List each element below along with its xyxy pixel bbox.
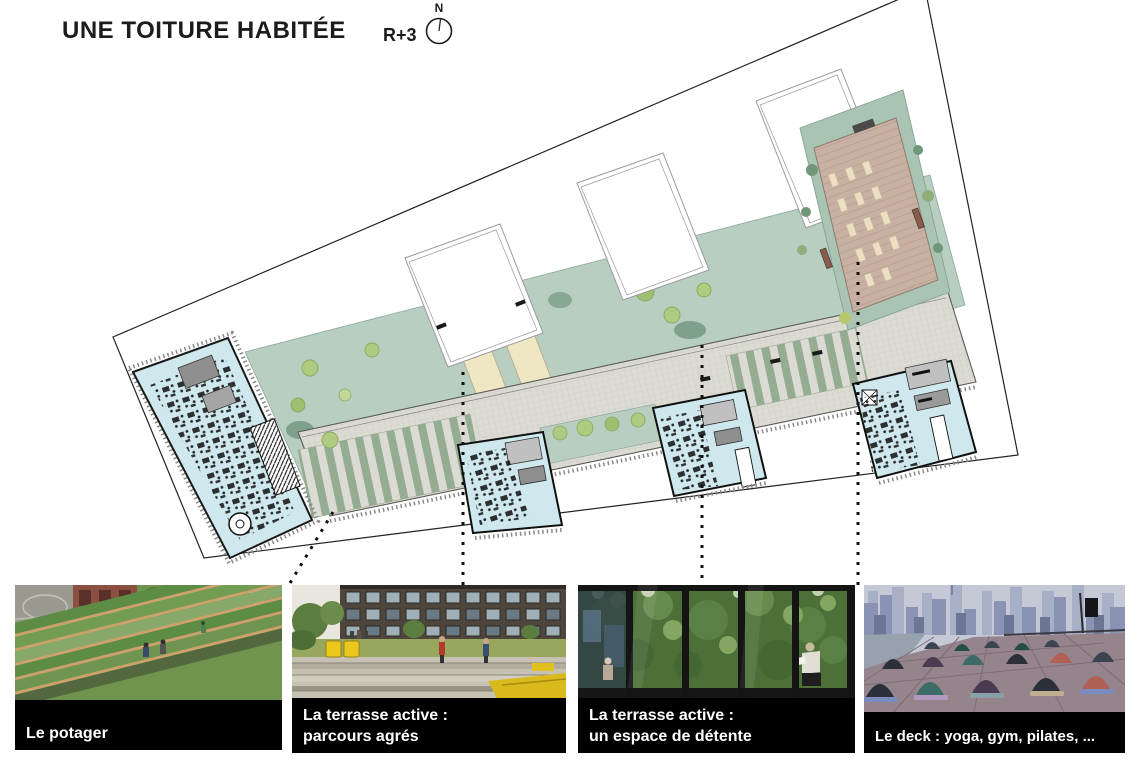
photo-potager: Le potager [15, 585, 282, 750]
photo-potager-caption: Le potager [15, 716, 282, 750]
photo-deck: Le deck : yoga, gym, pilates, ... [864, 585, 1125, 753]
photo-terrasse-detente-illustration [578, 585, 855, 700]
photo-terrasse-parcours: La terrasse active : parcours agrés [292, 585, 566, 753]
photo-deck-caption: Le deck : yoga, gym, pilates, ... [864, 720, 1125, 753]
photo-terrasse-parcours-caption: La terrasse active : parcours agrés [292, 698, 566, 753]
pavilion-2 [653, 390, 766, 496]
photo-terrasse-parcours-illustration [292, 585, 566, 700]
photo-terrasse-detente: La terrasse active : un espace de détent… [578, 585, 855, 753]
photo-potager-illustration [15, 585, 282, 700]
photo-terrasse-detente-caption: La terrasse active : un espace de détent… [578, 698, 855, 753]
photo-deck-illustration [864, 585, 1125, 712]
pavilion-1 [458, 432, 562, 533]
